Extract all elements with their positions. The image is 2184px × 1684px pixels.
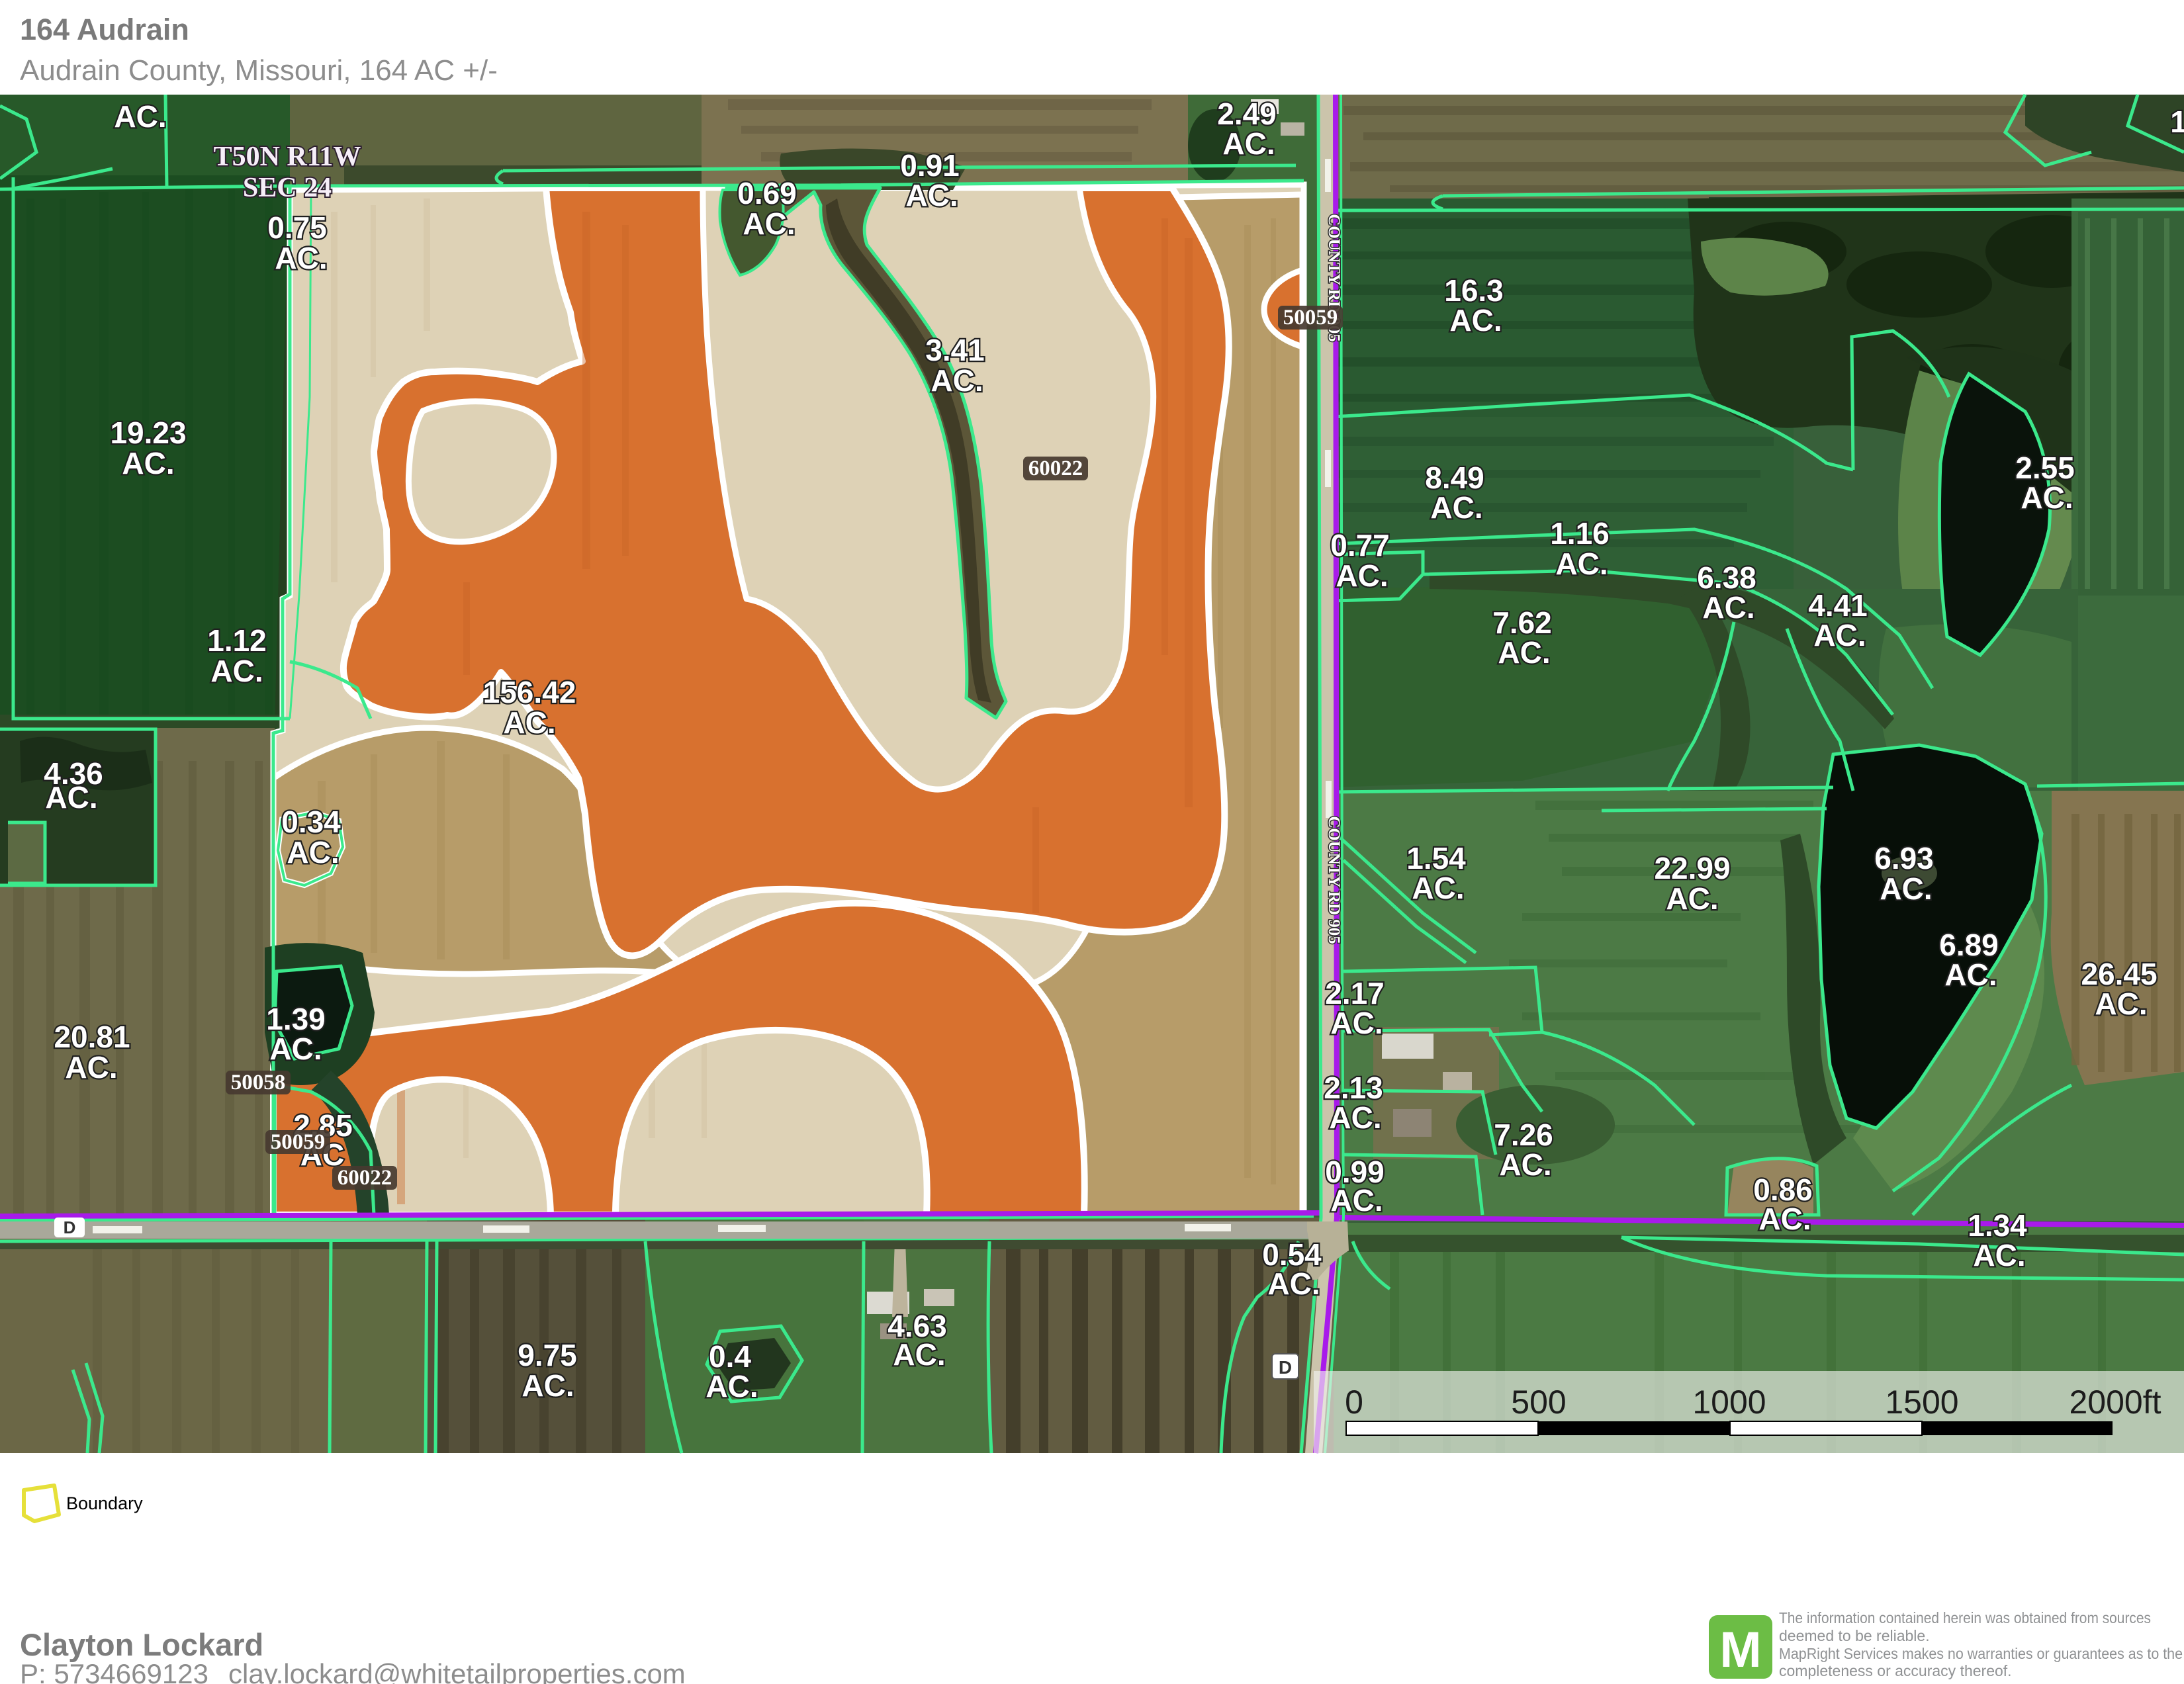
svg-text:completeness or accuracy there: completeness or accuracy thereof.: [1779, 1662, 2012, 1679]
svg-text:AC.: AC.: [269, 1032, 322, 1066]
svg-text:AC.: AC.: [1758, 1202, 1811, 1236]
svg-text:deemed to be reliable.: deemed to be reliable.: [1779, 1627, 1930, 1644]
svg-text:20.81: 20.81: [54, 1020, 130, 1054]
svg-text:AC.: AC.: [1329, 1100, 1381, 1135]
svg-text:D: D: [64, 1218, 76, 1237]
svg-text:2000ft: 2000ft: [2069, 1384, 2161, 1421]
svg-text:SEC 24: SEC 24: [243, 173, 332, 203]
svg-text:500: 500: [1511, 1384, 1566, 1421]
svg-text:Clayton Lockard: Clayton Lockard: [20, 1627, 263, 1662]
svg-text:AC.: AC.: [1430, 490, 1482, 525]
svg-text:AC.: AC.: [905, 178, 958, 212]
svg-text:9.75: 9.75: [518, 1338, 577, 1372]
svg-text:AC.: AC.: [1666, 881, 1718, 916]
svg-text:1500: 1500: [1885, 1384, 1958, 1421]
svg-text:60022: 60022: [1028, 457, 1083, 480]
svg-text:6.93: 6.93: [1874, 841, 1934, 875]
svg-text:AC.: AC.: [503, 705, 555, 740]
svg-text:AC.: AC.: [1449, 303, 1502, 337]
svg-text:The information contained here: The information contained herein was obt…: [1779, 1609, 2151, 1626]
svg-text:AC.: AC.: [114, 99, 166, 134]
svg-text:1000: 1000: [1692, 1384, 1766, 1421]
svg-text:50059: 50059: [1283, 306, 1338, 330]
svg-text:AC.: AC.: [1336, 558, 1388, 593]
svg-text:AC.: AC.: [122, 446, 174, 480]
svg-text:AC.: AC.: [2021, 480, 2073, 515]
svg-text:AC.: AC.: [1267, 1266, 1320, 1301]
svg-text:clay.lockard@whitetailproperti: clay.lockard@whitetailproperties.com: [228, 1658, 686, 1684]
svg-text:AC.: AC.: [1555, 547, 1608, 581]
svg-text:AC.: AC.: [931, 363, 983, 398]
svg-text:AC.: AC.: [1330, 1006, 1383, 1040]
svg-text:AC.: AC.: [1412, 871, 1464, 905]
svg-text:AC.: AC.: [45, 780, 97, 815]
svg-text:AC.: AC.: [1498, 635, 1550, 670]
svg-text:0.75: 0.75: [267, 210, 327, 245]
svg-text:MapRight Services makes no war: MapRight Services makes no warranties or…: [1779, 1645, 2183, 1662]
svg-text:AC.: AC.: [2095, 987, 2147, 1021]
svg-text:0: 0: [1345, 1384, 1363, 1421]
svg-text:AC.: AC.: [287, 835, 339, 869]
svg-text:AC.: AC.: [1973, 1238, 2025, 1272]
svg-text:T50N R11W: T50N R11W: [214, 142, 361, 172]
svg-text:1.16: 1.16: [1550, 516, 1610, 551]
svg-text:AC.: AC.: [1222, 126, 1275, 161]
svg-text:AC.: AC.: [1880, 871, 1932, 906]
svg-text:P: 5734669123: P: 5734669123: [20, 1658, 208, 1684]
svg-text:3.41: 3.41: [925, 333, 985, 367]
svg-text:22.99: 22.99: [1654, 851, 1730, 885]
svg-text:COUNTY RD 905: COUNTY RD 905: [1325, 816, 1343, 944]
svg-text:AC.: AC.: [1702, 590, 1754, 625]
svg-text:AC.: AC.: [522, 1368, 574, 1403]
svg-text:AC.: AC.: [705, 1369, 758, 1403]
svg-text:Audrain County, Missouri, 164: Audrain County, Missouri, 164 AC +/-: [20, 54, 498, 87]
svg-text:1: 1: [2170, 105, 2184, 139]
svg-text:164 Audrain: 164 Audrain: [20, 13, 189, 46]
svg-text:50058: 50058: [231, 1071, 286, 1094]
svg-text:1.12: 1.12: [207, 623, 267, 658]
svg-text:AC.: AC.: [743, 206, 795, 241]
svg-text:Boundary: Boundary: [66, 1493, 143, 1513]
svg-text:AC.: AC.: [1330, 1183, 1383, 1218]
svg-text:0.69: 0.69: [737, 176, 797, 210]
svg-text:50059: 50059: [271, 1130, 326, 1154]
svg-text:AC.: AC.: [1944, 957, 1997, 992]
svg-text:0.34: 0.34: [281, 805, 341, 839]
svg-text:60022: 60022: [338, 1166, 392, 1190]
svg-text:0.77: 0.77: [1330, 528, 1390, 562]
svg-text:AC.: AC.: [1499, 1147, 1551, 1182]
svg-text:AC.: AC.: [893, 1337, 945, 1372]
svg-text:D: D: [1279, 1357, 1292, 1378]
svg-text:M: M: [1719, 1622, 1761, 1678]
svg-text:AC.: AC.: [1813, 618, 1866, 652]
svg-text:AC.: AC.: [65, 1050, 117, 1085]
svg-text:AC.: AC.: [210, 654, 263, 688]
svg-text:AC.: AC.: [275, 241, 327, 275]
svg-text:19.23: 19.23: [110, 416, 186, 450]
svg-text:156.42: 156.42: [483, 675, 576, 709]
